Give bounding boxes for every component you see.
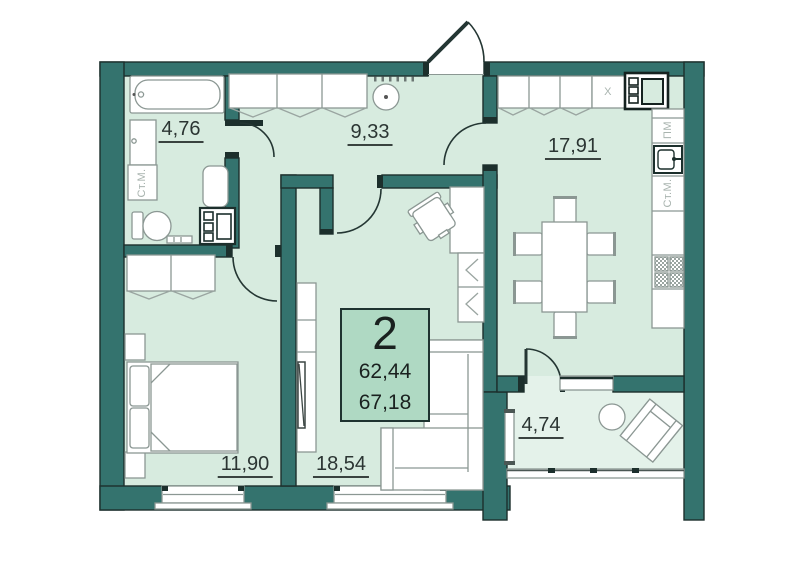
- tv-cabinet-symbol: [297, 283, 316, 452]
- nightstand-symbol: [125, 452, 145, 478]
- kitchen-counter-symbol: [652, 109, 684, 328]
- bedroom-area-label: 11,90: [218, 454, 273, 478]
- nightstand-symbol: [125, 334, 145, 360]
- dishwasher-label: ПМ: [662, 121, 674, 139]
- bedroom-window: [155, 486, 251, 509]
- boiler-cabinet-symbol: [203, 166, 228, 207]
- fridge-label: X: [604, 86, 612, 98]
- apartment-info-box: 2 62,44 67,18: [340, 308, 430, 422]
- living-wardrobe-symbol: [458, 253, 484, 322]
- floor-plan: 4,76 9,33 17,91 11,90 18,54 4,74 Ст.М. X…: [0, 0, 800, 565]
- bathroom-sink-symbol: [130, 120, 156, 165]
- bathroom-washer-label: Ст.М.: [136, 168, 148, 197]
- living-area-value: 62,44: [359, 356, 412, 388]
- toilet-symbol: [132, 212, 171, 241]
- bathroom-area-label: 4,76: [159, 119, 204, 143]
- balcony-area-label: 4,74: [519, 415, 564, 439]
- balcony-glazing: [507, 468, 684, 478]
- living-area-label: 18,54: [313, 454, 369, 478]
- rooms-count: 2: [372, 310, 398, 356]
- hallway-area-label: 9,33: [348, 122, 393, 146]
- floor-plan-drawing: [0, 0, 800, 565]
- double-bed-symbol: [127, 362, 238, 453]
- desk-symbol: [450, 187, 484, 253]
- total-area-value: 67,18: [359, 387, 412, 419]
- hallway-mirror-symbol: [373, 84, 399, 110]
- bathroom-cabinet-symbol: [200, 208, 235, 244]
- kitchen-balcony-window: [560, 376, 613, 390]
- kitchen-washer-label: Ст.М.: [662, 178, 674, 207]
- kitchen-sink-symbol: [654, 146, 682, 173]
- kitchen-area-label: 17,91: [545, 136, 601, 160]
- bath-mat-symbol: [167, 236, 192, 243]
- bathtub-symbol: [130, 76, 224, 113]
- stove-oven-symbol: [625, 73, 668, 109]
- balcony-table-symbol: [599, 404, 625, 430]
- balcony-side-window: [504, 409, 515, 465]
